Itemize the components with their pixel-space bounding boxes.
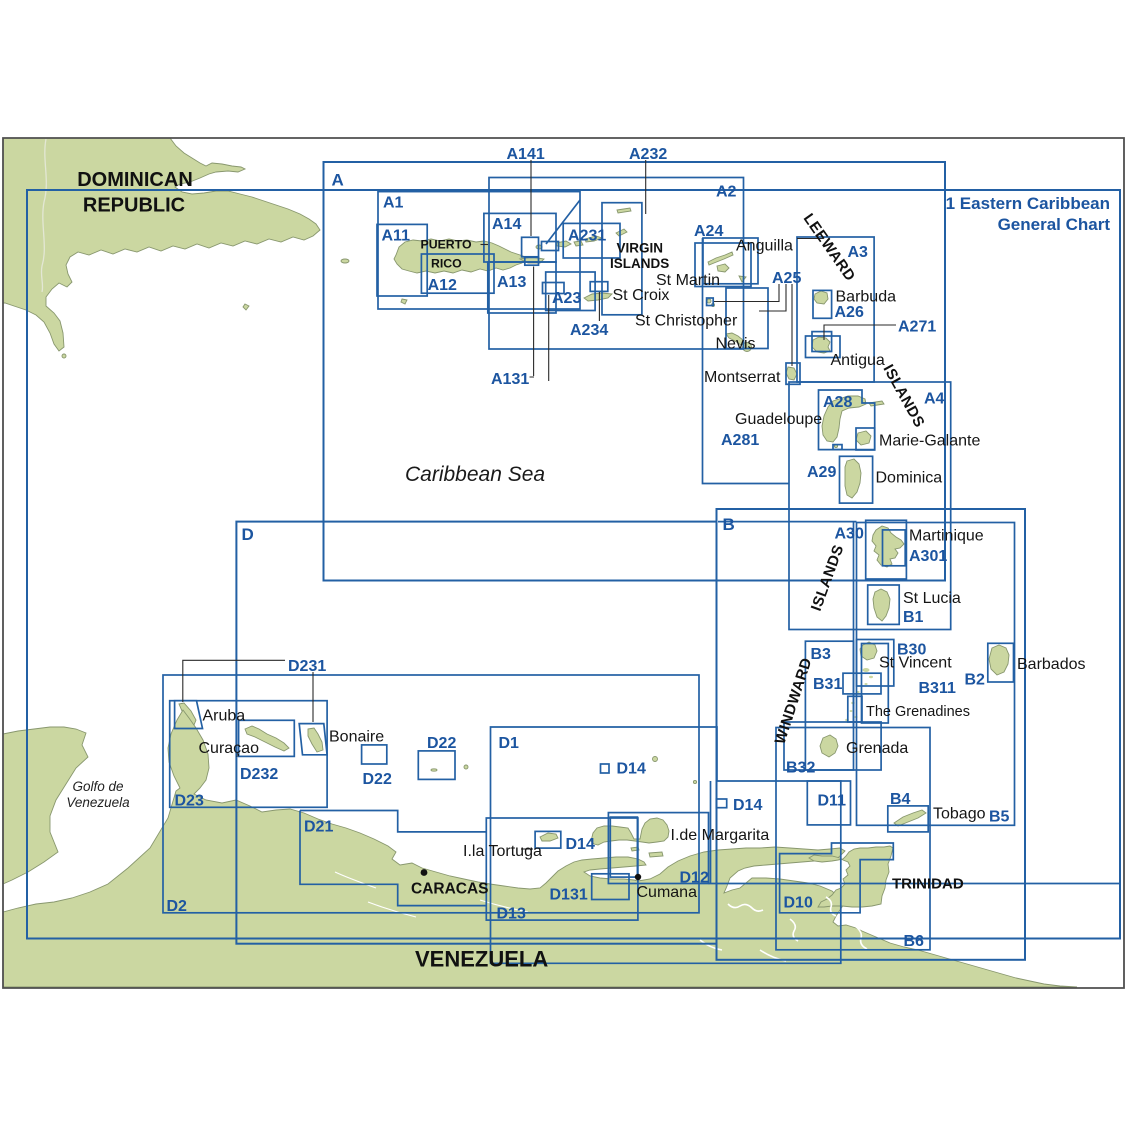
svg-text:B31: B31 <box>813 676 842 693</box>
svg-text:B4: B4 <box>890 791 911 808</box>
svg-text:St Lucia: St Lucia <box>903 590 961 607</box>
svg-text:VIRGIN: VIRGIN <box>617 241 664 256</box>
svg-text:A13: A13 <box>497 274 526 291</box>
svg-text:VENEZUELA: VENEZUELA <box>415 947 548 972</box>
svg-text:Guadeloupe: Guadeloupe <box>735 411 822 428</box>
svg-text:ISLANDS: ISLANDS <box>610 256 669 271</box>
svg-text:A26: A26 <box>835 304 864 321</box>
svg-text:D131: D131 <box>550 887 588 904</box>
svg-text:A231: A231 <box>568 228 606 245</box>
svg-text:Nevis: Nevis <box>716 336 756 353</box>
svg-text:A2: A2 <box>716 184 737 201</box>
svg-text:A28: A28 <box>823 394 852 411</box>
svg-text:A232: A232 <box>629 146 667 163</box>
svg-text:A12: A12 <box>428 277 457 294</box>
svg-text:D: D <box>242 525 254 544</box>
svg-text:D14: D14 <box>566 836 595 853</box>
svg-text:Curaçao: Curaçao <box>199 740 260 757</box>
svg-text:A23: A23 <box>552 290 581 307</box>
svg-text:B311: B311 <box>919 680 956 697</box>
svg-text:Anguilla: Anguilla <box>736 238 793 255</box>
svg-text:Grenada: Grenada <box>846 740 908 757</box>
svg-text:A4: A4 <box>924 391 945 408</box>
svg-text:The Grenadines: The Grenadines <box>866 704 970 720</box>
svg-text:D232: D232 <box>240 766 278 783</box>
svg-text:REPUBLIC: REPUBLIC <box>83 195 185 217</box>
svg-text:D1: D1 <box>499 735 520 752</box>
svg-text:A234: A234 <box>570 322 608 339</box>
svg-text:B32: B32 <box>786 760 815 777</box>
svg-text:A271: A271 <box>898 319 936 336</box>
svg-text:D10: D10 <box>784 895 813 912</box>
svg-text:D22: D22 <box>427 735 456 752</box>
svg-text:B5: B5 <box>989 809 1010 826</box>
svg-text:D14: D14 <box>733 797 762 814</box>
svg-text:RICO: RICO <box>431 257 462 271</box>
svg-text:A1: A1 <box>383 195 404 212</box>
svg-text:A24: A24 <box>694 223 723 240</box>
svg-text:A29: A29 <box>807 464 836 481</box>
svg-text:St Croix: St Croix <box>613 287 670 304</box>
svg-text:I.de Margarita: I.de Margarita <box>671 827 770 844</box>
svg-text:Martinique: Martinique <box>909 528 984 545</box>
svg-text:D21: D21 <box>304 819 333 836</box>
svg-text:D2: D2 <box>167 898 188 915</box>
svg-text:Montserrat: Montserrat <box>704 369 781 386</box>
svg-text:A141: A141 <box>507 146 545 163</box>
svg-text:A301: A301 <box>909 548 947 565</box>
svg-text:D11: D11 <box>818 793 847 810</box>
svg-text:D14: D14 <box>617 761 646 778</box>
svg-text:A30: A30 <box>835 526 864 543</box>
svg-text:B3: B3 <box>811 646 832 663</box>
svg-text:Cumana: Cumana <box>637 884 698 901</box>
svg-text:A3: A3 <box>848 244 869 261</box>
svg-text:Tobago: Tobago <box>933 806 986 823</box>
svg-text:Caribbean Sea: Caribbean Sea <box>405 463 545 486</box>
svg-text:Golfo de: Golfo de <box>72 779 123 794</box>
svg-text:A: A <box>332 171 344 190</box>
svg-text:Bonaire: Bonaire <box>329 729 384 746</box>
svg-text:A14: A14 <box>492 216 521 233</box>
svg-text:TRINIDAD: TRINIDAD <box>892 876 964 893</box>
svg-text:A11: A11 <box>382 228 411 245</box>
svg-text:A131: A131 <box>491 371 529 388</box>
svg-text:A281: A281 <box>721 432 759 449</box>
svg-text:DOMINICAN: DOMINICAN <box>77 169 193 191</box>
svg-text:PUERTO: PUERTO <box>421 238 472 252</box>
svg-text:Aruba: Aruba <box>203 708 246 725</box>
svg-text:General Chart: General Chart <box>998 215 1111 234</box>
svg-text:St Vincent: St Vincent <box>879 655 952 672</box>
svg-text:St Christopher: St Christopher <box>635 313 738 330</box>
svg-text:Venezuela: Venezuela <box>66 795 130 810</box>
svg-text:Barbuda: Barbuda <box>836 289 897 306</box>
svg-text:Dominica: Dominica <box>876 470 943 487</box>
svg-text:CARACAS: CARACAS <box>411 881 489 898</box>
svg-text:B6: B6 <box>904 933 925 950</box>
svg-text:Antigua: Antigua <box>831 352 885 369</box>
svg-text:A25: A25 <box>772 270 801 287</box>
svg-text:Marie-Galante: Marie-Galante <box>879 433 980 450</box>
svg-text:St Martin: St Martin <box>656 272 720 289</box>
svg-text:D23: D23 <box>175 793 204 810</box>
svg-text:B2: B2 <box>965 672 986 689</box>
svg-text:D231: D231 <box>288 658 326 675</box>
svg-text:D13: D13 <box>497 906 526 923</box>
svg-text:Barbados: Barbados <box>1017 656 1086 673</box>
svg-text:B1: B1 <box>903 609 924 626</box>
svg-text:I.la Tortuga: I.la Tortuga <box>463 843 542 860</box>
svg-text:B: B <box>723 515 735 534</box>
svg-text:D22: D22 <box>363 771 392 788</box>
svg-text:1 Eastern Caribbean: 1 Eastern Caribbean <box>946 194 1110 213</box>
